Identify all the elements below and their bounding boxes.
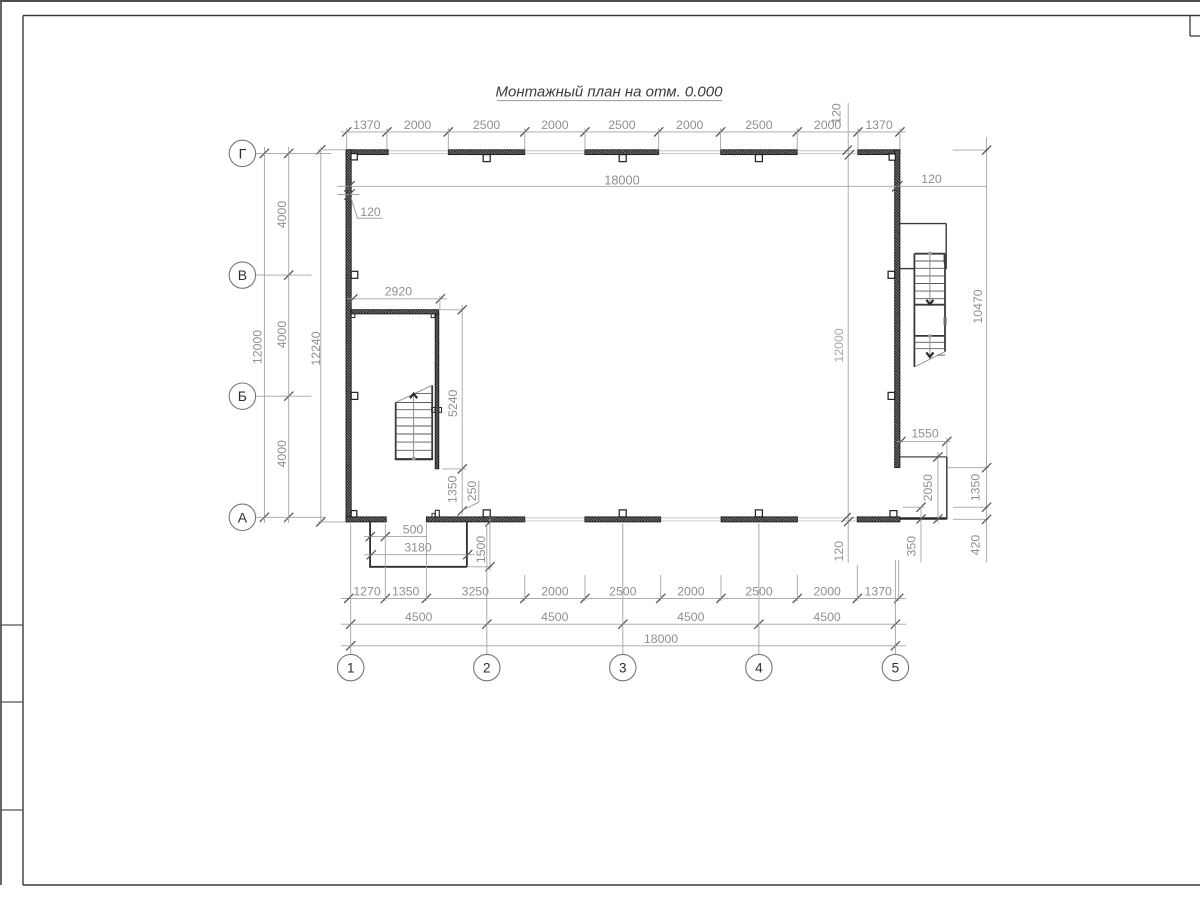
svg-text:4500: 4500 <box>541 610 569 624</box>
svg-text:Г: Г <box>239 145 247 161</box>
svg-text:2500: 2500 <box>745 118 773 132</box>
svg-text:4000: 4000 <box>275 201 289 229</box>
svg-text:1350: 1350 <box>969 474 983 502</box>
svg-text:2000: 2000 <box>676 118 704 132</box>
svg-text:4: 4 <box>755 661 763 676</box>
svg-text:12240: 12240 <box>309 331 323 365</box>
svg-text:Б: Б <box>238 388 247 404</box>
svg-text:3: 3 <box>619 661 627 676</box>
svg-text:1350: 1350 <box>392 584 420 598</box>
svg-text:4000: 4000 <box>275 440 289 468</box>
svg-text:1370: 1370 <box>353 118 381 132</box>
svg-text:2000: 2000 <box>541 118 569 132</box>
svg-text:А: А <box>238 509 248 525</box>
svg-text:1350: 1350 <box>446 475 460 503</box>
svg-text:3180: 3180 <box>404 541 432 555</box>
svg-text:18000: 18000 <box>644 632 678 646</box>
svg-text:2050: 2050 <box>921 474 935 502</box>
svg-text:2000: 2000 <box>814 584 842 598</box>
svg-text:Монтажный план на отм. 0.000: Монтажный план на отм. 0.000 <box>496 84 724 101</box>
svg-text:5: 5 <box>892 661 900 676</box>
svg-text:2500: 2500 <box>608 118 636 132</box>
svg-text:2500: 2500 <box>473 118 501 132</box>
svg-text:2000: 2000 <box>541 584 569 598</box>
svg-text:4500: 4500 <box>405 610 433 624</box>
svg-text:120: 120 <box>921 172 942 186</box>
svg-text:420: 420 <box>969 535 983 556</box>
svg-text:1370: 1370 <box>865 118 893 132</box>
svg-text:12000: 12000 <box>250 330 264 364</box>
svg-text:120: 120 <box>832 541 846 562</box>
svg-text:250: 250 <box>465 481 479 502</box>
svg-text:500: 500 <box>403 523 424 537</box>
svg-text:120: 120 <box>360 205 381 219</box>
svg-text:2: 2 <box>483 661 491 676</box>
svg-text:4500: 4500 <box>813 610 841 624</box>
svg-text:4500: 4500 <box>677 610 705 624</box>
svg-text:4000: 4000 <box>275 321 289 349</box>
svg-text:350: 350 <box>905 536 919 557</box>
svg-text:12000: 12000 <box>832 328 846 362</box>
svg-text:1270: 1270 <box>353 584 381 598</box>
svg-text:1500: 1500 <box>474 536 488 564</box>
svg-text:5240: 5240 <box>446 389 460 417</box>
svg-text:2000: 2000 <box>404 118 432 132</box>
svg-text:18000: 18000 <box>604 172 640 187</box>
svg-text:1370: 1370 <box>865 584 893 598</box>
svg-text:10470: 10470 <box>971 289 985 323</box>
svg-text:2920: 2920 <box>385 285 413 299</box>
svg-text:3250: 3250 <box>462 584 490 598</box>
svg-text:В: В <box>238 267 247 283</box>
svg-text:1550: 1550 <box>911 426 939 440</box>
svg-text:1: 1 <box>347 661 355 676</box>
svg-text:120: 120 <box>830 103 844 124</box>
svg-text:2000: 2000 <box>677 584 705 598</box>
